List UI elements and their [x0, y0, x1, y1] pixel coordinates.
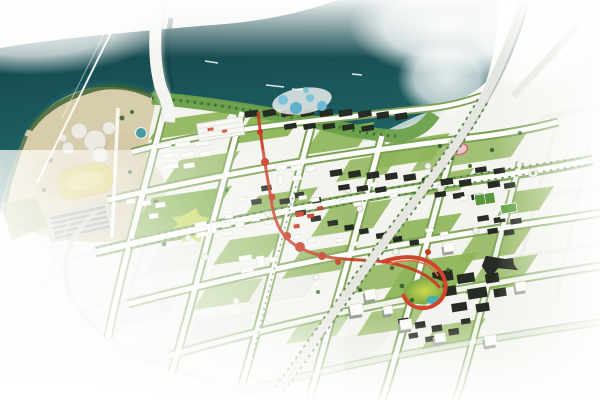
teal-pond [136, 128, 147, 139]
master-plan-rendering [0, 0, 600, 400]
